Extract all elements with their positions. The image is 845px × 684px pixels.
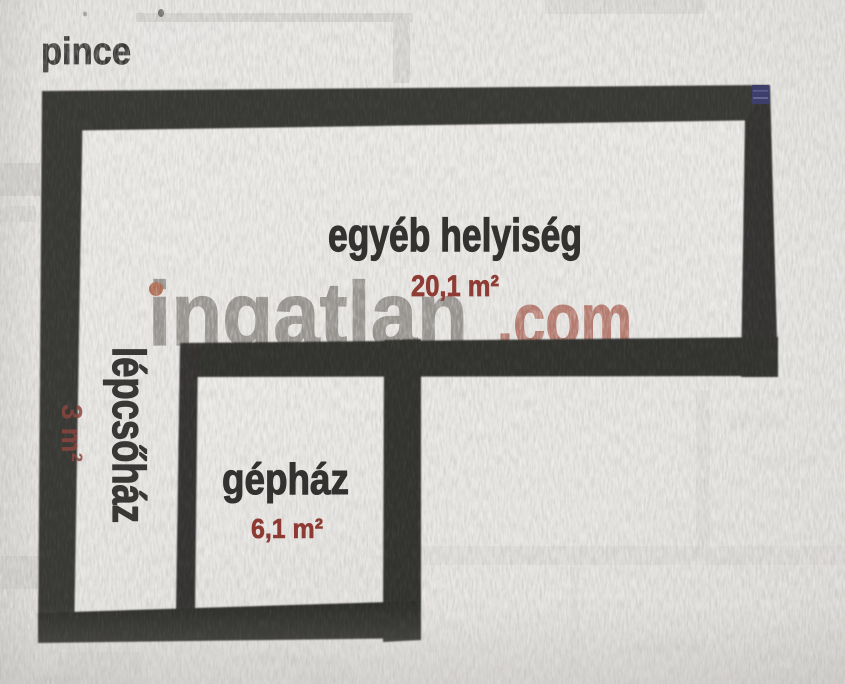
svg-text:gépház: gépház xyxy=(222,455,349,504)
svg-text:egyéb helyiség: egyéb helyiség xyxy=(328,209,582,261)
svg-text:20,1 m²: 20,1 m² xyxy=(411,270,499,303)
svg-text:3 m²: 3 m² xyxy=(55,404,87,462)
svg-text:6,1 m²: 6,1 m² xyxy=(251,513,323,544)
svg-text:lépcsőház: lépcsőház xyxy=(103,347,155,523)
